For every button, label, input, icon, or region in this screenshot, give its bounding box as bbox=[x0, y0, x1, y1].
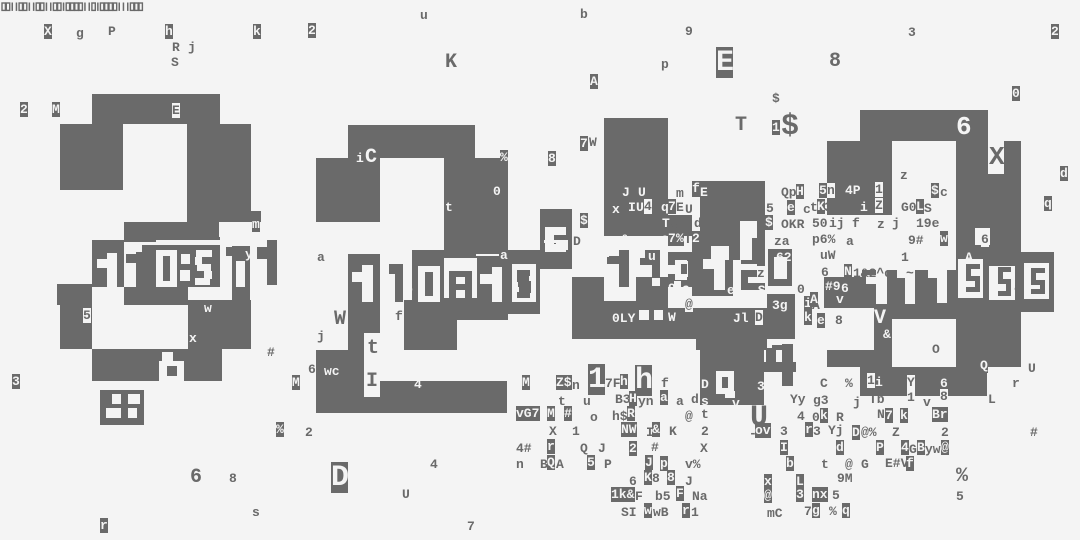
svg-text:o: o bbox=[590, 410, 598, 425]
svg-text:p: p bbox=[660, 456, 668, 471]
svg-text:t: t bbox=[821, 457, 829, 472]
svg-text:a: a bbox=[676, 394, 684, 409]
svg-text:6: 6 bbox=[956, 112, 972, 142]
svg-text:D: D bbox=[573, 234, 581, 249]
svg-text:n: n bbox=[572, 378, 580, 393]
svg-text:1: 1 bbox=[772, 120, 780, 135]
svg-text:A: A bbox=[590, 74, 598, 89]
svg-text:6: 6 bbox=[190, 466, 202, 489]
svg-text:G: G bbox=[682, 283, 690, 298]
svg-text:s: s bbox=[252, 505, 260, 520]
svg-text:M: M bbox=[52, 102, 60, 117]
svg-text:D: D bbox=[331, 461, 349, 495]
svg-text:8: 8 bbox=[829, 50, 841, 73]
svg-text:n: n bbox=[827, 183, 835, 198]
svg-text:vG7: vG7 bbox=[516, 406, 539, 421]
svg-text:mC: mC bbox=[767, 506, 783, 521]
svg-text:#: # bbox=[651, 440, 659, 455]
svg-text:S: S bbox=[171, 55, 179, 70]
svg-text:h: h bbox=[620, 374, 628, 389]
svg-text:Tb: Tb bbox=[869, 392, 885, 407]
svg-text:L: L bbox=[916, 199, 924, 214]
svg-text:E: E bbox=[716, 46, 734, 80]
svg-text:7: 7 bbox=[804, 504, 812, 519]
svg-text:2: 2 bbox=[629, 441, 637, 456]
svg-text:2: 2 bbox=[20, 102, 28, 117]
svg-text:K: K bbox=[445, 51, 457, 74]
svg-text:w: w bbox=[204, 301, 212, 316]
svg-text:X: X bbox=[700, 441, 708, 456]
svg-text:2: 2 bbox=[1051, 24, 1059, 39]
svg-text:5: 5 bbox=[832, 488, 840, 503]
svg-text:6: 6 bbox=[981, 232, 989, 247]
svg-text:a: a bbox=[660, 390, 668, 405]
svg-text:8: 8 bbox=[652, 471, 660, 486]
svg-text:J: J bbox=[645, 455, 653, 470]
svg-text:d: d bbox=[691, 392, 699, 407]
svg-text:yn: yn bbox=[638, 394, 654, 409]
svg-text:7: 7 bbox=[668, 199, 676, 214]
svg-text:@: @ bbox=[845, 457, 853, 472]
svg-text:9: 9 bbox=[685, 24, 693, 39]
svg-text:J: J bbox=[598, 441, 606, 456]
svg-text:b: b bbox=[786, 456, 794, 471]
svg-text:m: m bbox=[676, 186, 684, 201]
svg-text:I: I bbox=[780, 440, 788, 455]
svg-text:5: 5 bbox=[766, 201, 774, 216]
svg-text:d: d bbox=[1060, 166, 1068, 181]
svg-text:nx: nx bbox=[812, 487, 828, 502]
svg-text:O: O bbox=[932, 342, 940, 357]
svg-text:8: 8 bbox=[835, 313, 843, 328]
svg-text:3: 3 bbox=[796, 487, 804, 502]
svg-text:Yy: Yy bbox=[790, 392, 806, 407]
svg-text:D: D bbox=[755, 310, 763, 325]
svg-text:P: P bbox=[604, 457, 612, 472]
svg-text:1k&: 1k& bbox=[611, 487, 635, 502]
svg-text:@: @ bbox=[941, 440, 949, 455]
svg-text:%: % bbox=[500, 150, 508, 165]
svg-text:W: W bbox=[668, 310, 676, 325]
svg-text:j: j bbox=[317, 329, 325, 344]
svg-text:Na: Na bbox=[692, 489, 708, 504]
svg-text:U: U bbox=[1028, 361, 1036, 376]
svg-text:f: f bbox=[852, 216, 860, 231]
svg-text:3: 3 bbox=[12, 374, 20, 389]
svg-text:K: K bbox=[644, 470, 652, 485]
svg-text:M: M bbox=[547, 406, 555, 421]
svg-text:j: j bbox=[892, 216, 900, 231]
svg-text:C: C bbox=[820, 376, 828, 391]
svg-text:D: D bbox=[701, 377, 709, 392]
svg-text:1: 1 bbox=[588, 363, 606, 397]
svg-text:v%: v% bbox=[685, 457, 701, 472]
svg-text:&: & bbox=[652, 422, 660, 437]
svg-text:9M: 9M bbox=[837, 471, 853, 486]
svg-text:0: 0 bbox=[493, 184, 501, 199]
svg-text:$: $ bbox=[931, 183, 939, 198]
svg-text:5: 5 bbox=[83, 308, 91, 323]
svg-text:D: D bbox=[852, 425, 860, 440]
svg-text:4P: 4P bbox=[845, 183, 861, 198]
svg-text:5: 5 bbox=[587, 455, 595, 470]
svg-text:@: @ bbox=[764, 488, 772, 503]
svg-text:3: 3 bbox=[780, 424, 788, 439]
svg-text:.S: .S bbox=[750, 283, 766, 298]
svg-text:4: 4 bbox=[414, 377, 422, 392]
svg-text:G0: G0 bbox=[901, 200, 917, 215]
svg-text:$: $ bbox=[580, 213, 588, 228]
svg-text:H: H bbox=[796, 184, 804, 199]
svg-text:ij: ij bbox=[829, 216, 845, 231]
svg-text:f: f bbox=[906, 456, 914, 471]
svg-text:0: 0 bbox=[1012, 86, 1020, 101]
svg-text:N: N bbox=[844, 264, 852, 279]
svg-text:v: v bbox=[923, 395, 931, 410]
svg-text:x: x bbox=[764, 474, 772, 489]
svg-text:0LY: 0LY bbox=[612, 311, 636, 326]
svg-text:4: 4 bbox=[901, 440, 909, 455]
svg-text:M: M bbox=[292, 375, 300, 390]
svg-text:e: e bbox=[787, 200, 795, 215]
svg-text:4: 4 bbox=[644, 199, 652, 214]
svg-text:#: # bbox=[1030, 425, 1038, 440]
svg-text:1: 1 bbox=[867, 373, 875, 388]
svg-text:i: i bbox=[860, 200, 868, 215]
svg-text:@: @ bbox=[685, 409, 693, 424]
svg-text:7: 7 bbox=[885, 408, 893, 423]
svg-text:9#: 9# bbox=[908, 233, 924, 248]
svg-text:3g: 3g bbox=[772, 298, 788, 313]
svg-text:b: b bbox=[580, 7, 588, 22]
svg-text:K: K bbox=[669, 424, 677, 439]
svg-text:Jl: Jl bbox=[733, 311, 749, 326]
svg-text:za: za bbox=[774, 234, 790, 249]
svg-text:7F: 7F bbox=[605, 376, 621, 391]
svg-text:L: L bbox=[988, 392, 996, 407]
svg-text:q: q bbox=[842, 503, 850, 518]
svg-text:Z$: Z$ bbox=[556, 375, 572, 390]
svg-text:a: a bbox=[317, 250, 325, 265]
svg-text:r: r bbox=[100, 518, 108, 533]
svg-text:el.: el. bbox=[727, 283, 750, 298]
svg-text:u: u bbox=[648, 249, 656, 264]
svg-text:5: 5 bbox=[956, 489, 964, 504]
svg-text:#: # bbox=[267, 345, 275, 360]
svg-text:%: % bbox=[676, 231, 684, 246]
svg-text:X: X bbox=[44, 24, 52, 39]
svg-text:R: R bbox=[172, 40, 180, 55]
svg-text:d: d bbox=[836, 440, 844, 455]
svg-text:E: E bbox=[676, 200, 684, 215]
svg-text:A: A bbox=[810, 292, 818, 307]
svg-text:F: F bbox=[635, 489, 643, 504]
svg-text:p6%: p6% bbox=[812, 232, 836, 247]
svg-text:%: % bbox=[276, 422, 284, 437]
svg-text:OKR: OKR bbox=[781, 217, 805, 232]
svg-text:n: n bbox=[516, 457, 524, 472]
svg-text:R: R bbox=[627, 406, 635, 421]
svg-text:g: g bbox=[76, 26, 84, 41]
svg-text:~: ~ bbox=[906, 266, 914, 281]
svg-text:i: i bbox=[356, 151, 364, 166]
svg-text:3: 3 bbox=[908, 25, 916, 40]
svg-text:uW: uW bbox=[820, 248, 836, 263]
svg-text:S: S bbox=[924, 201, 932, 216]
svg-text:8: 8 bbox=[229, 471, 237, 486]
svg-text:j: j bbox=[188, 40, 196, 55]
svg-text:4: 4 bbox=[430, 457, 438, 472]
svg-text:u: u bbox=[583, 394, 591, 409]
svg-text:1: 1 bbox=[907, 390, 915, 405]
svg-text:g3: g3 bbox=[813, 393, 829, 408]
svg-text:N: N bbox=[877, 407, 885, 422]
svg-text:k: k bbox=[900, 408, 908, 423]
svg-text:x: x bbox=[612, 202, 620, 217]
svg-text:Yj: Yj bbox=[828, 423, 844, 438]
svg-text:U: U bbox=[685, 202, 693, 217]
svg-text:62: 62 bbox=[776, 250, 792, 265]
svg-text:q: q bbox=[1044, 196, 1052, 211]
svg-text:r: r bbox=[547, 439, 555, 454]
svg-text:s: s bbox=[670, 217, 678, 232]
svg-text:Y: Y bbox=[907, 375, 915, 390]
svg-text:2: 2 bbox=[701, 424, 709, 439]
svg-text:0: 0 bbox=[812, 410, 820, 425]
svg-text:7: 7 bbox=[668, 231, 676, 246]
svg-text:P: P bbox=[108, 24, 116, 39]
svg-text:7: 7 bbox=[467, 519, 475, 534]
svg-text:Z: Z bbox=[892, 425, 900, 440]
svg-text:8: 8 bbox=[940, 389, 948, 404]
svg-text:Z: Z bbox=[875, 198, 883, 213]
svg-text:%: % bbox=[956, 465, 969, 488]
svg-text:1: 1 bbox=[691, 505, 699, 520]
svg-text:M: M bbox=[522, 375, 530, 390]
svg-text:I: I bbox=[628, 200, 636, 215]
svg-text:I: I bbox=[366, 370, 378, 393]
svg-text:A: A bbox=[556, 457, 564, 472]
svg-text:r: r bbox=[1012, 376, 1020, 391]
svg-text:wc: wc bbox=[324, 364, 340, 379]
svg-text:$: $ bbox=[772, 91, 780, 106]
svg-text:$: $ bbox=[781, 110, 799, 144]
svg-text:2: 2 bbox=[308, 23, 316, 38]
svg-text:m: m bbox=[252, 217, 260, 232]
svg-text:B: B bbox=[917, 440, 925, 455]
svg-text:p: p bbox=[661, 57, 669, 72]
svg-text:a: a bbox=[1014, 280, 1022, 295]
svg-text:t: t bbox=[367, 337, 379, 360]
svg-text:G: G bbox=[861, 457, 869, 472]
svg-text:A: A bbox=[965, 250, 973, 265]
svg-text:yw: yw bbox=[925, 442, 941, 457]
svg-text:4: 4 bbox=[797, 409, 805, 424]
svg-text:J: J bbox=[685, 474, 693, 489]
svg-text:&: & bbox=[621, 232, 629, 247]
svg-text:o: o bbox=[405, 282, 413, 297]
svg-text:a: a bbox=[500, 248, 508, 263]
svg-text:f: f bbox=[692, 181, 700, 196]
svg-text:5: 5 bbox=[819, 183, 827, 198]
svg-text:k: k bbox=[804, 310, 812, 325]
svg-text:y: y bbox=[245, 247, 253, 262]
svg-text:b5: b5 bbox=[655, 489, 671, 504]
svg-text:X: X bbox=[549, 424, 557, 439]
svg-text:0: 0 bbox=[797, 282, 805, 297]
svg-text:U: U bbox=[636, 200, 644, 215]
svg-text:T: T bbox=[735, 114, 747, 137]
svg-text:h: h bbox=[165, 24, 173, 39]
svg-text:E: E bbox=[700, 185, 708, 200]
svg-text:2: 2 bbox=[941, 425, 949, 440]
svg-text:NW: NW bbox=[621, 422, 637, 437]
svg-text:v: v bbox=[836, 292, 844, 307]
svg-text:f: f bbox=[661, 376, 669, 391]
svg-text:X: X bbox=[989, 142, 1005, 172]
svg-text:1: 1 bbox=[901, 250, 909, 265]
svg-text:z: z bbox=[877, 217, 885, 232]
svg-text:6: 6 bbox=[308, 362, 316, 377]
svg-text:U: U bbox=[638, 185, 646, 200]
svg-text:&: & bbox=[883, 327, 891, 342]
svg-text:3: 3 bbox=[813, 424, 821, 439]
svg-text:g: g bbox=[812, 503, 820, 518]
svg-text:v: v bbox=[732, 396, 740, 411]
svg-text:e: e bbox=[817, 313, 825, 328]
svg-text:z: z bbox=[900, 168, 908, 183]
svg-text:Q: Q bbox=[580, 441, 588, 456]
svg-text:9: 9 bbox=[668, 281, 676, 296]
svg-text:2: 2 bbox=[305, 425, 313, 440]
svg-text:E: E bbox=[172, 103, 180, 118]
svg-text:J: J bbox=[622, 185, 630, 200]
svg-text:1&2^o: 1&2^o bbox=[853, 266, 892, 281]
svg-text:a: a bbox=[846, 234, 854, 249]
svg-text:w: w bbox=[644, 503, 652, 518]
svg-text:%: % bbox=[845, 376, 853, 391]
svg-text:F: F bbox=[676, 486, 684, 501]
svg-text:i: i bbox=[875, 375, 883, 390]
svg-text:G: G bbox=[909, 442, 917, 457]
svg-text:7: 7 bbox=[580, 136, 588, 151]
svg-text:r: r bbox=[682, 503, 690, 518]
svg-text:#: # bbox=[564, 406, 572, 421]
svg-text:c: c bbox=[940, 185, 948, 200]
svg-text:w: w bbox=[940, 231, 948, 246]
svg-text:4#: 4# bbox=[516, 441, 532, 456]
svg-text:H: H bbox=[629, 391, 637, 406]
svg-text:x: x bbox=[189, 331, 197, 346]
svg-text:t: t bbox=[382, 279, 390, 294]
svg-text:1: 1 bbox=[875, 182, 883, 197]
svg-text:h: h bbox=[635, 364, 653, 398]
svg-text:SI: SI bbox=[621, 505, 637, 520]
svg-text:T: T bbox=[662, 216, 670, 231]
svg-text:@%: @% bbox=[861, 425, 877, 440]
svg-text:8: 8 bbox=[667, 470, 675, 485]
svg-text:3: 3 bbox=[757, 379, 765, 394]
svg-text:%: % bbox=[829, 504, 837, 519]
svg-text:k: k bbox=[820, 408, 828, 423]
svg-text:Qp: Qp bbox=[781, 185, 797, 200]
svg-text:@: @ bbox=[685, 297, 693, 312]
svg-text:d: d bbox=[694, 216, 702, 231]
svg-text:ov: ov bbox=[755, 423, 771, 438]
svg-text:8: 8 bbox=[548, 151, 556, 166]
svg-text:t: t bbox=[445, 200, 453, 215]
svg-text:Q: Q bbox=[980, 358, 988, 373]
svg-text:19e: 19e bbox=[916, 216, 940, 231]
svg-text:Q: Q bbox=[547, 455, 555, 470]
svg-text:T: T bbox=[684, 232, 692, 247]
svg-text:Br: Br bbox=[932, 407, 948, 422]
svg-text:W: W bbox=[589, 135, 597, 150]
svg-text:W: W bbox=[334, 308, 346, 331]
svg-text:P: P bbox=[876, 440, 884, 455]
svg-text:1: 1 bbox=[572, 424, 580, 439]
svg-text:f: f bbox=[395, 309, 403, 324]
svg-text:k: k bbox=[253, 24, 261, 39]
svg-text:3: 3 bbox=[824, 200, 832, 215]
svg-text:2: 2 bbox=[692, 231, 700, 246]
svg-text:u: u bbox=[420, 8, 428, 23]
svg-text:50: 50 bbox=[812, 216, 828, 231]
svg-text:wB: wB bbox=[653, 505, 669, 520]
svg-text:z: z bbox=[757, 266, 765, 281]
svg-text:t: t bbox=[701, 407, 709, 422]
svg-text:C: C bbox=[365, 146, 377, 169]
svg-text:$: $ bbox=[765, 215, 773, 230]
svg-text:j: j bbox=[853, 395, 861, 410]
svg-text:6: 6 bbox=[821, 265, 829, 280]
svg-text:U: U bbox=[402, 487, 410, 502]
